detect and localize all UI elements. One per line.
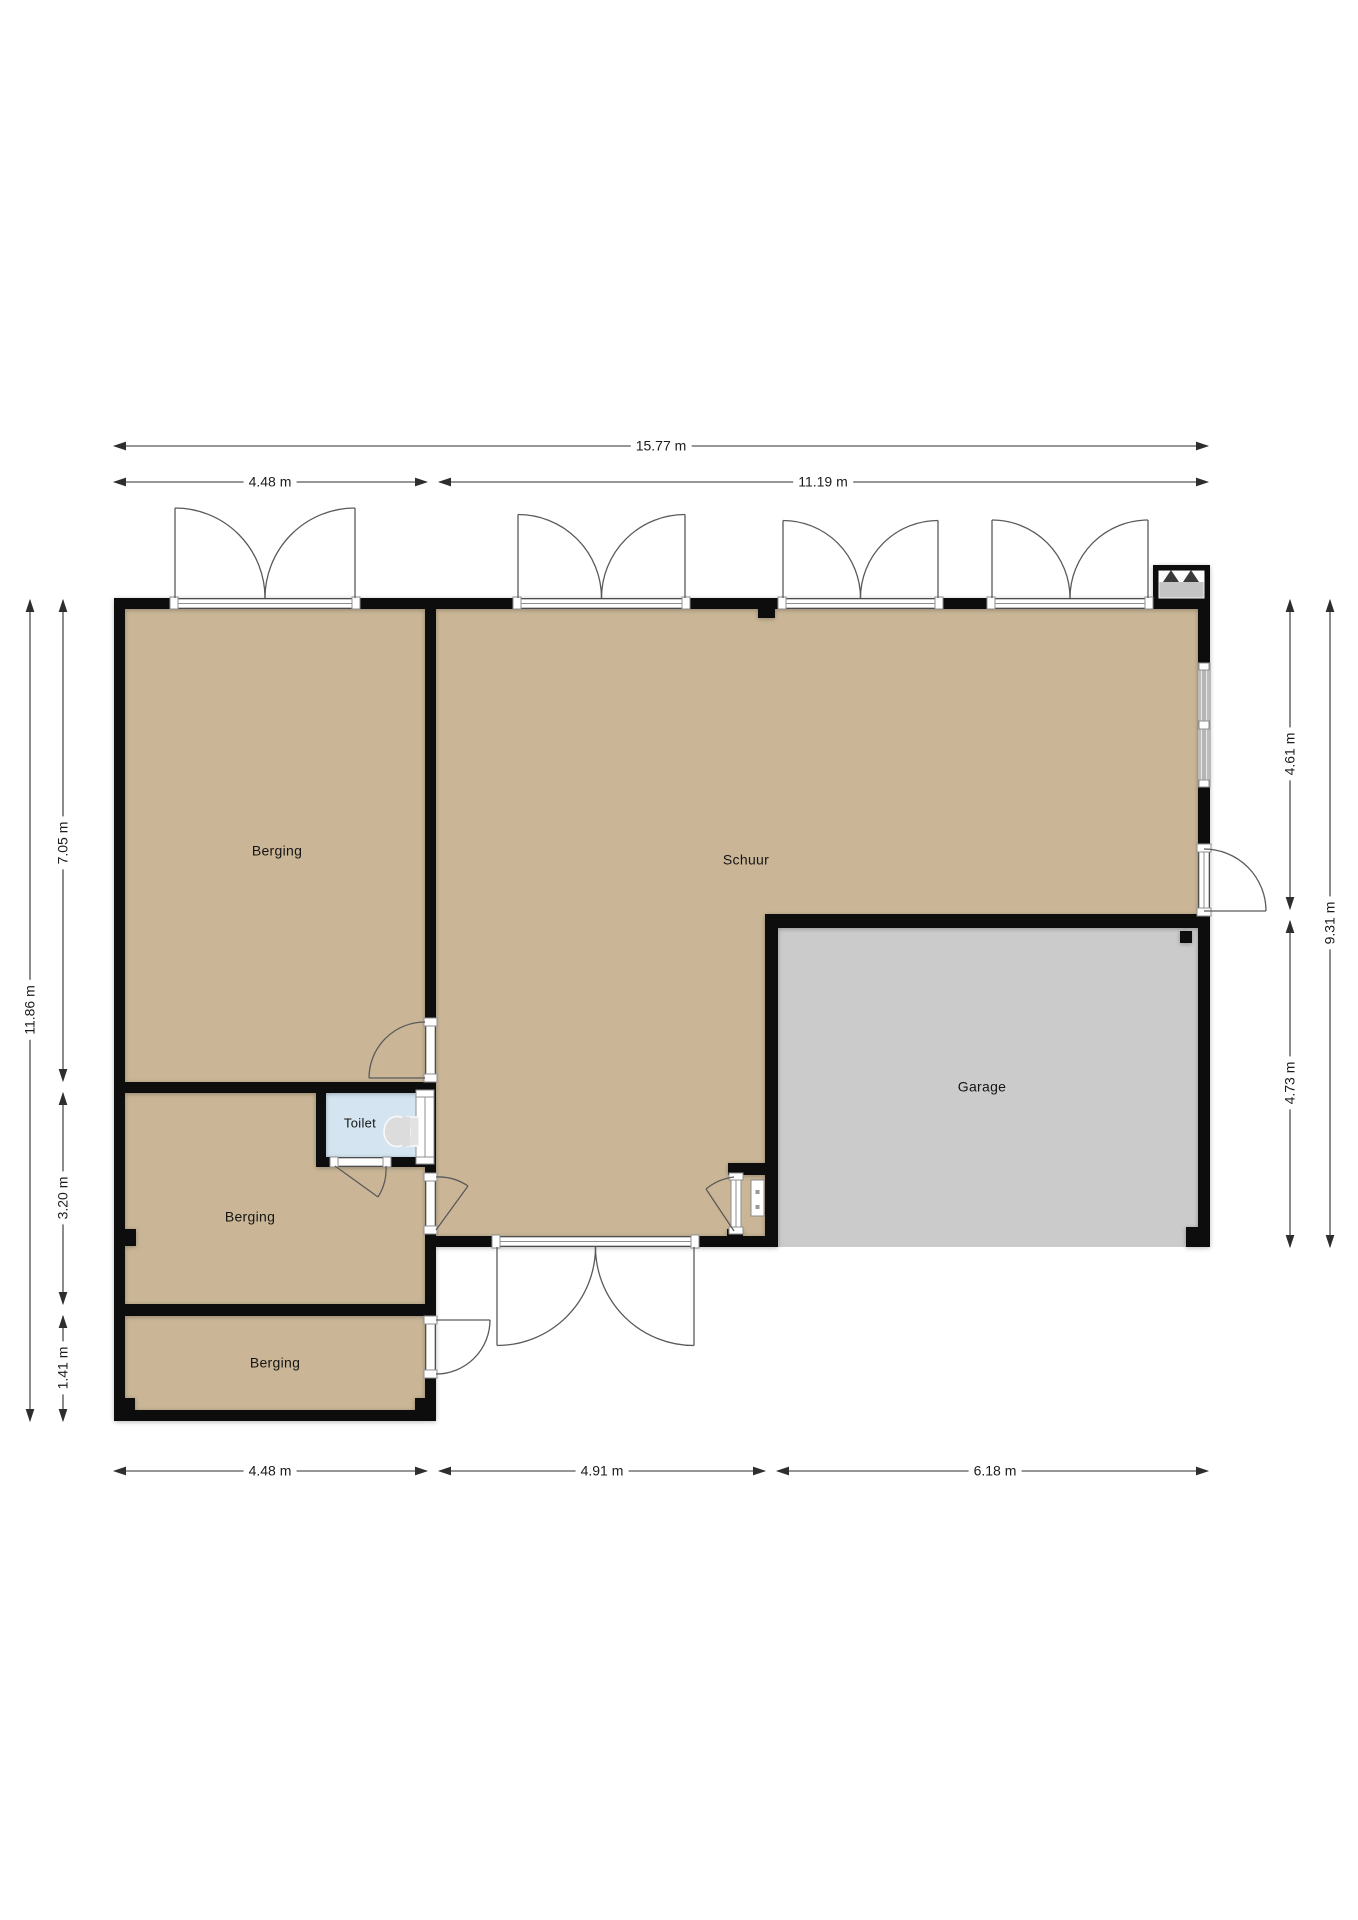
double-door-icon-3 xyxy=(783,521,938,599)
wall-nub-top xyxy=(758,609,775,618)
dim-label-bot-left: 4.48 m xyxy=(244,1463,297,1480)
wall-left xyxy=(114,598,125,1421)
sill-berging-mid-door xyxy=(424,1173,437,1234)
wall-pier-garage xyxy=(1180,931,1192,943)
sill-toilet-door xyxy=(330,1157,391,1167)
dim-label-left-3: 1.41 m xyxy=(55,1342,72,1395)
sill-bottom-double-door xyxy=(492,1235,699,1248)
double-door-icon-bottom xyxy=(497,1247,694,1346)
dim-label-right-1: 4.61 m xyxy=(1282,728,1299,781)
wall-berging-mid-bot xyxy=(125,1304,425,1316)
dim-label-bot-right: 6.18 m xyxy=(969,1463,1022,1480)
room-label-berging-mid: Berging xyxy=(220,1209,280,1226)
double-door-icon-1 xyxy=(175,508,355,598)
dim-label-bot-mid: 4.91 m xyxy=(576,1463,629,1480)
corner-unit-icon xyxy=(1159,570,1204,598)
sill-niche-door xyxy=(729,1173,743,1234)
wall-pier-left xyxy=(125,1229,136,1246)
sill-berging-top-door xyxy=(424,1018,437,1082)
dim-label-top-total: 15.77 m xyxy=(631,438,692,455)
room-label-toilet: Toilet xyxy=(339,1115,381,1132)
sill-top-door-4 xyxy=(987,597,1153,609)
sill-berging-bot-door xyxy=(424,1316,437,1378)
sill-top-door-3 xyxy=(778,597,943,609)
wall-pier-botberging-l xyxy=(125,1398,135,1410)
room-label-berging-bot: Berging xyxy=(245,1355,305,1372)
dim-label-top-right: 11.19 m xyxy=(793,474,853,491)
wall-interior-vertical xyxy=(425,609,436,1410)
room-label-berging-top: Berging xyxy=(247,843,307,860)
dim-label-right-2: 4.73 m xyxy=(1282,1057,1299,1110)
dim-label-left-1: 7.05 m xyxy=(55,817,72,870)
dim-label-left-total: 11.86 m xyxy=(22,980,39,1040)
wall-garage-right-step xyxy=(1186,1227,1198,1247)
dim-label-left-2: 3.20 m xyxy=(55,1172,72,1225)
wall-pier-botberging-r xyxy=(415,1398,425,1410)
double-door-icon-4 xyxy=(992,520,1148,598)
toilet-fixture-icon xyxy=(384,1117,419,1147)
floorplan-drawing xyxy=(0,0,1358,1920)
dim-label-right-total: 9.31 m xyxy=(1322,897,1339,950)
room-floors xyxy=(125,609,1198,1410)
wall-berging-top-mid xyxy=(125,1082,425,1093)
double-door-icon-2 xyxy=(518,515,685,599)
door-swing-icon-berging-bot xyxy=(436,1320,490,1374)
wall-garage-left xyxy=(765,914,778,1247)
floorplan-page: Berging Schuur Toilet Berging Berging Ga… xyxy=(0,0,1358,1920)
wall-bottom-left-block xyxy=(114,1410,436,1421)
room-label-schuur: Schuur xyxy=(718,852,774,869)
dim-label-top-left: 4.48 m xyxy=(244,474,297,491)
sill-top-door-1 xyxy=(170,597,360,609)
wall-toilet-left xyxy=(316,1093,326,1167)
wall-garage-top xyxy=(765,914,1210,928)
sill-right-exit-door xyxy=(1197,844,1211,916)
door-swing-icon-right-exit xyxy=(1204,849,1266,911)
room-label-garage: Garage xyxy=(953,1079,1012,1096)
window-right-wall-icon xyxy=(1198,663,1210,787)
sill-top-door-2 xyxy=(513,597,690,609)
boiler-fixture-icon xyxy=(751,1180,764,1216)
